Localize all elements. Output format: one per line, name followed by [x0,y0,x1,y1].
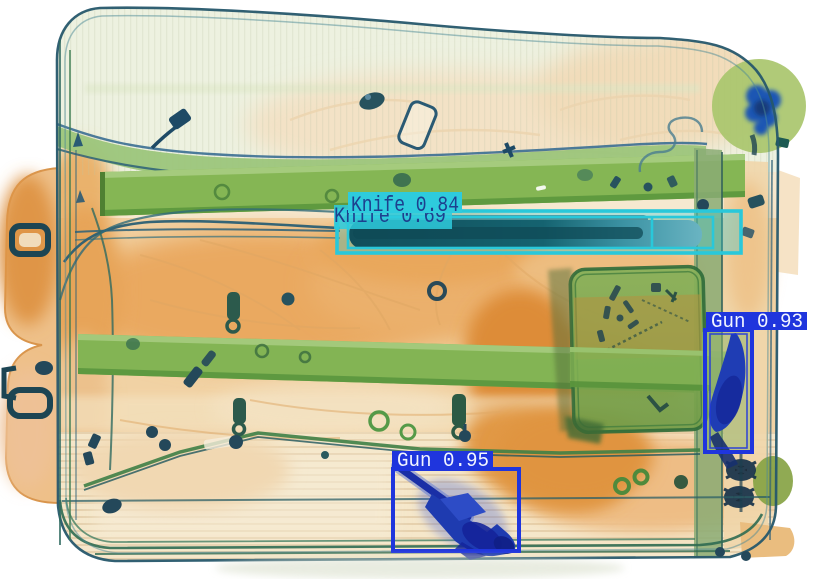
svg-text:Gun 0.95: Gun 0.95 [397,450,489,473]
svg-text:Gun 0.93: Gun 0.93 [711,311,803,334]
svg-text:Knife 0.84: Knife 0.84 [351,193,459,218]
